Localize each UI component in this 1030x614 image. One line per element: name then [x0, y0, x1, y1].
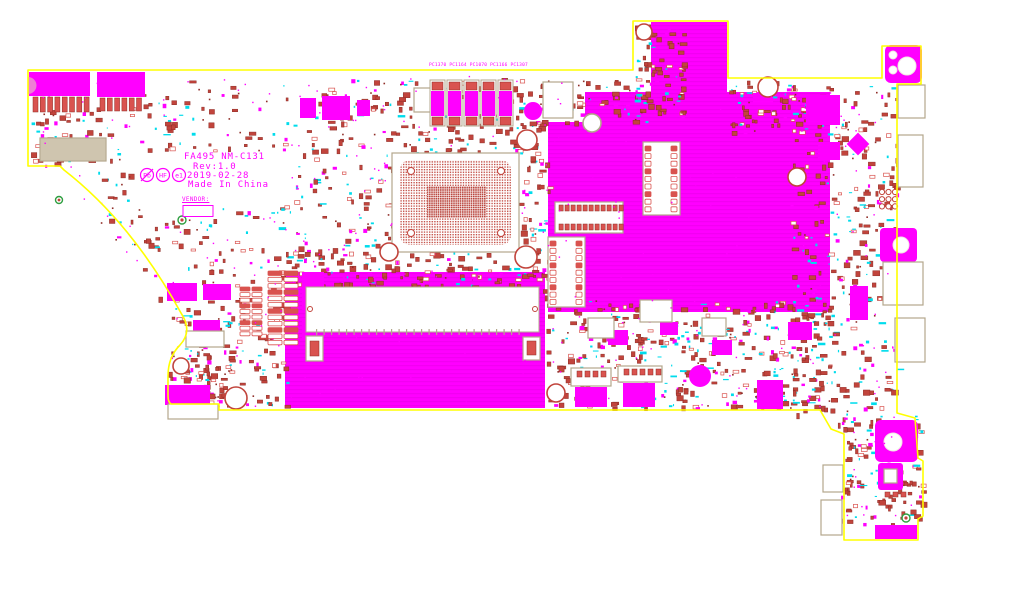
board-render: PbHFe1	[0, 0, 1030, 614]
board-model-label: FA495 NM-C131	[184, 153, 265, 162]
cpu-bga	[392, 153, 519, 252]
board-origin-label: Made In China	[188, 181, 269, 190]
compliance-mark-e1: e1	[175, 171, 183, 179]
vendor-label: VENDOR:	[182, 197, 209, 203]
compliance-mark-HF: HF	[159, 171, 167, 179]
capacitor-row	[430, 80, 513, 126]
vendor-box	[183, 206, 213, 217]
ram-slot	[306, 287, 539, 335]
capacitor-refdes-labels: PC1370 PC1164 PC1070 PC1166 PC1307	[429, 64, 528, 69]
boardview-canvas[interactable]: PbHFe1 FA495 NM-C131 Rev:1.0 2019-02-28 …	[0, 0, 1030, 614]
